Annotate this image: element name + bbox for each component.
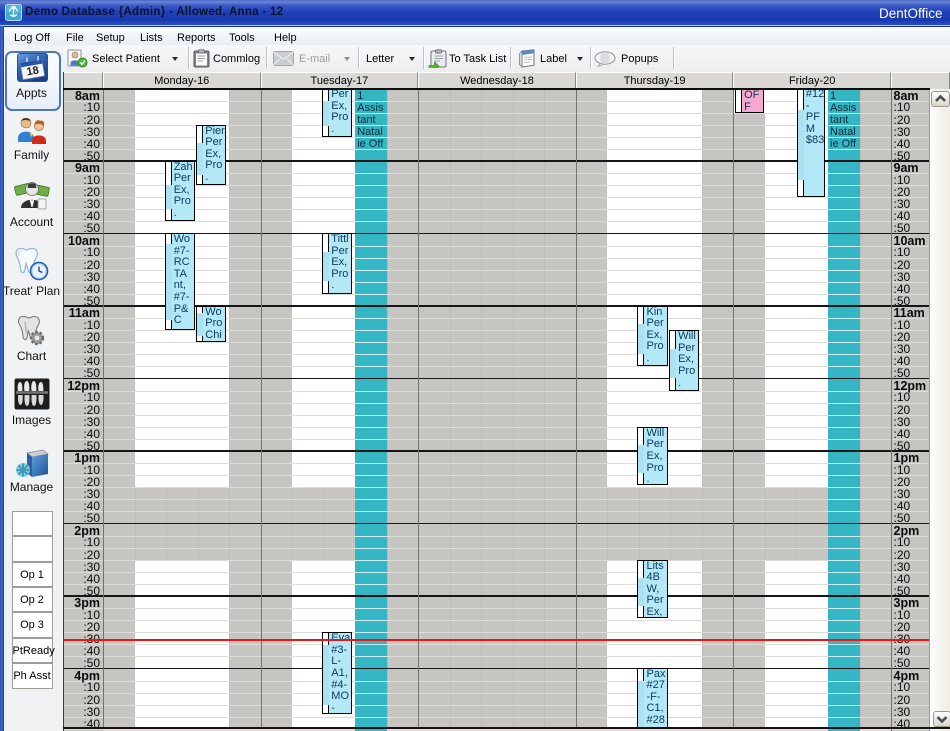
svg-text:18: 18 xyxy=(26,64,40,78)
